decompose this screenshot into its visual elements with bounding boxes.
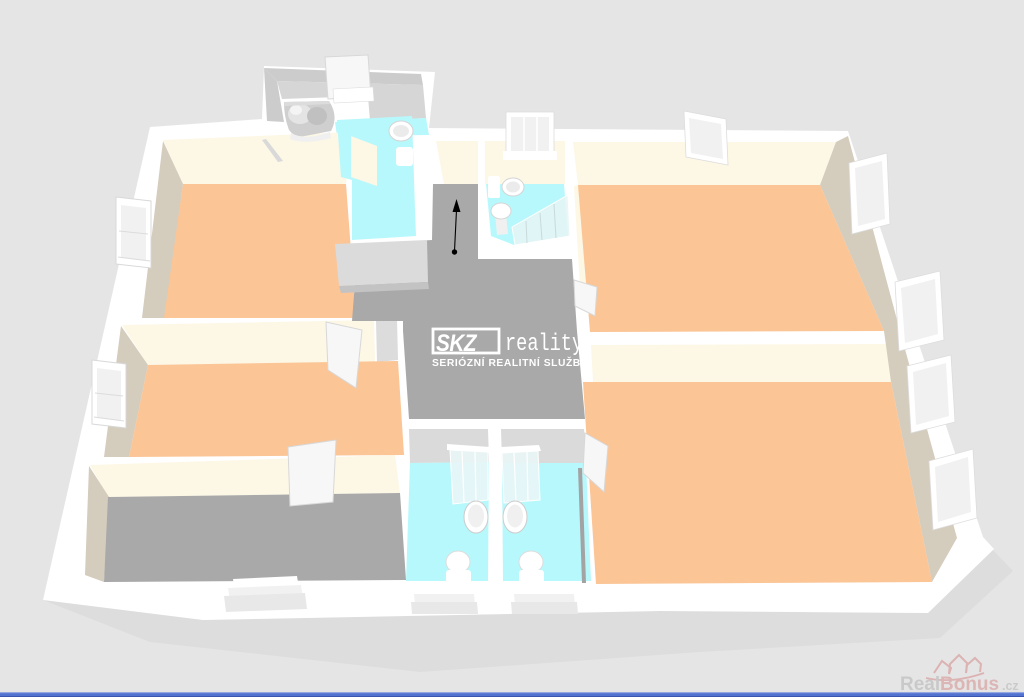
svg-text:SERIÓZNÍ REALITNÍ SLUŽBY: SERIÓZNÍ REALITNÍ SLUŽBY: [432, 356, 588, 369]
svg-text:SKZ: SKZ: [436, 330, 478, 357]
svg-text:Real: Real: [900, 674, 940, 695]
svg-text:Bonus: Bonus: [940, 674, 999, 695]
svg-text:.cz: .cz: [1002, 679, 1019, 693]
svg-text:reality: reality: [505, 331, 583, 358]
